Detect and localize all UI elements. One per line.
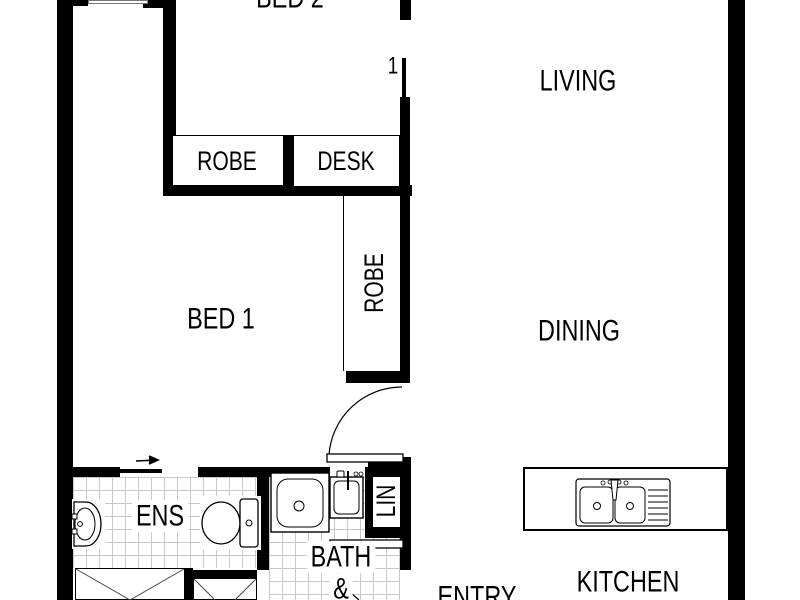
room-label-entry: ENTRY	[438, 581, 517, 600]
room-label-living: LIVING	[540, 65, 617, 97]
door-leaf-icon	[402, 58, 406, 97]
room-label-bed2: BED 2	[256, 0, 324, 14]
ensuite-toilet-icon	[200, 496, 261, 550]
wardrobe-cross-left-icon	[76, 569, 184, 600]
bed1-door	[327, 387, 403, 462]
ensuite-vanity-basin-icon	[72, 499, 105, 549]
door-leaf-icon	[327, 454, 403, 462]
label-bed2-robe: ROBE	[197, 147, 257, 175]
wardrobe-cross-right-icon	[194, 579, 256, 600]
room-label-kitchen: KITCHEN	[577, 566, 680, 598]
bed2-door-number: 1	[388, 53, 398, 78]
room-label-bath-line1: BATH	[307, 541, 375, 573]
label-bed2-desk: DESK	[317, 147, 374, 175]
door-swing-arc-icon	[329, 387, 402, 455]
room-label-bed1: BED 1	[187, 303, 255, 335]
laundry-tub-icon	[330, 471, 363, 518]
label-bed1-robe: ROBE	[360, 253, 388, 313]
bathtub-icon	[271, 473, 329, 532]
label-linen: LIN	[372, 485, 400, 518]
sliding-door-arrow-icon	[136, 456, 158, 464]
kitchen-double-sink-icon	[576, 479, 670, 526]
room-label-dining: DINING	[538, 315, 620, 347]
floor-plan: BED 2 LIVING ROBE DESK ROBE BED 1 DINING…	[0, 0, 800, 600]
room-label-ens: ENS	[132, 500, 188, 532]
room-label-bath-line2: &	[329, 573, 352, 600]
bed2-door	[402, 58, 406, 97]
